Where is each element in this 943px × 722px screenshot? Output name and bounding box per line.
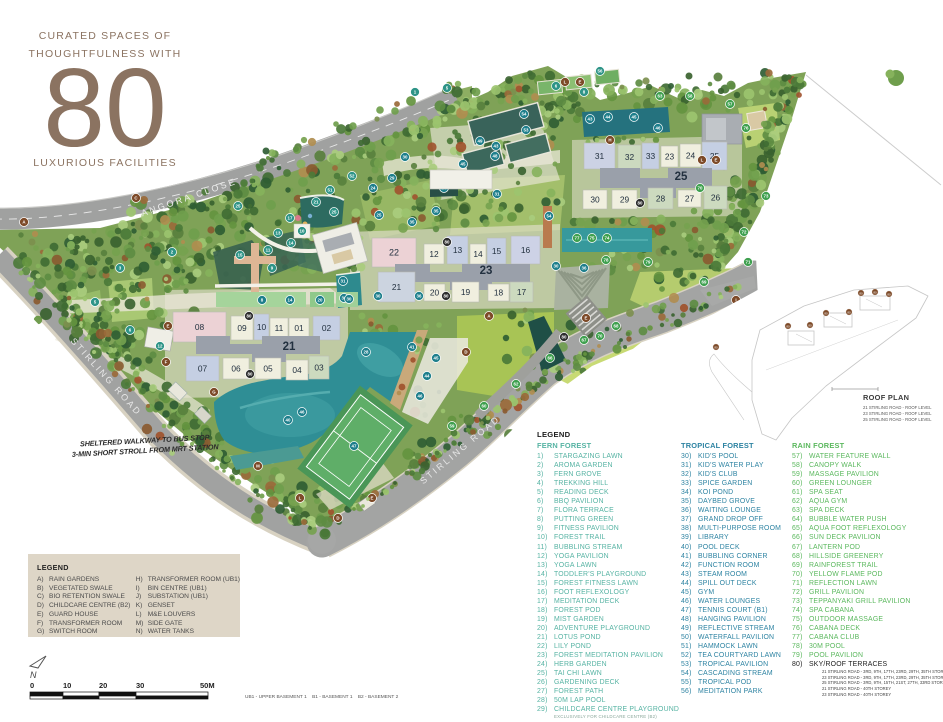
svg-text:80: 80	[887, 292, 891, 296]
svg-text:24: 24	[686, 151, 696, 161]
svg-text:30: 30	[376, 294, 381, 299]
svg-text:M: M	[256, 464, 260, 469]
svg-text:07: 07	[198, 364, 208, 374]
svg-text:05: 05	[263, 364, 273, 374]
svg-text:F: F	[165, 360, 168, 365]
svg-text:70: 70	[598, 334, 603, 339]
svg-text:30: 30	[347, 297, 352, 302]
svg-text:54: 54	[522, 112, 527, 117]
svg-text:80: 80	[786, 324, 790, 328]
svg-text:30: 30	[136, 681, 144, 690]
svg-text:70: 70	[698, 186, 703, 191]
svg-text:49: 49	[478, 139, 483, 144]
svg-text:30: 30	[554, 264, 559, 269]
svg-text:80: 80	[847, 310, 851, 314]
svg-text:D: D	[464, 350, 467, 355]
svg-text:47: 47	[352, 444, 357, 449]
svg-text:08: 08	[195, 322, 205, 332]
svg-text:46: 46	[418, 394, 423, 399]
svg-text:41: 41	[410, 345, 415, 350]
svg-text:51: 51	[328, 188, 333, 193]
svg-text:46: 46	[656, 126, 661, 131]
svg-text:L: L	[564, 80, 567, 85]
svg-text:35: 35	[434, 209, 439, 214]
svg-text:54: 54	[547, 214, 552, 219]
svg-text:13: 13	[276, 231, 281, 236]
svg-text:56: 56	[598, 69, 603, 74]
svg-text:14: 14	[289, 241, 294, 246]
svg-text:H: H	[608, 138, 611, 143]
svg-text:80: 80	[248, 372, 253, 377]
svg-text:63: 63	[658, 94, 663, 99]
svg-text:02: 02	[322, 323, 332, 333]
svg-text:03: 03	[314, 363, 324, 373]
svg-text:13: 13	[453, 245, 463, 255]
svg-text:35: 35	[410, 220, 415, 225]
svg-text:59: 59	[450, 424, 455, 429]
svg-text:21: 21	[314, 200, 319, 205]
svg-text:15: 15	[238, 253, 243, 258]
svg-text:23: 23	[665, 152, 675, 162]
svg-text:36: 36	[417, 294, 422, 299]
svg-text:80: 80	[444, 294, 449, 299]
svg-text:23: 23	[480, 265, 493, 277]
svg-text:78: 78	[604, 258, 609, 263]
svg-text:14: 14	[288, 298, 293, 303]
svg-text:33: 33	[646, 151, 656, 161]
svg-text:L: L	[299, 496, 302, 501]
svg-text:24: 24	[371, 186, 376, 191]
svg-text:44: 44	[425, 374, 430, 379]
svg-text:72: 72	[742, 230, 747, 235]
svg-text:80: 80	[562, 335, 567, 340]
svg-text:74: 74	[605, 236, 610, 241]
svg-text:20: 20	[99, 681, 107, 690]
svg-text:77: 77	[575, 236, 580, 241]
svg-text:30: 30	[403, 155, 408, 160]
svg-text:31: 31	[595, 151, 605, 161]
svg-text:52: 52	[350, 174, 355, 179]
svg-text:40: 40	[286, 418, 291, 423]
svg-text:22: 22	[389, 248, 399, 258]
svg-text:66: 66	[548, 356, 553, 361]
svg-text:32: 32	[625, 152, 635, 162]
svg-text:28: 28	[364, 350, 369, 355]
svg-text:71: 71	[746, 260, 751, 265]
svg-text:21: 21	[283, 341, 296, 353]
svg-text:79: 79	[646, 260, 651, 265]
svg-text:L: L	[701, 158, 704, 163]
svg-text:80: 80	[638, 201, 643, 206]
svg-text:11: 11	[275, 323, 284, 333]
svg-text:31: 31	[495, 192, 500, 197]
svg-text:15: 15	[492, 246, 502, 256]
svg-text:ROOF PLAN: ROOF PLAN	[863, 393, 909, 402]
svg-text:26: 26	[711, 193, 721, 203]
svg-text:10: 10	[300, 229, 305, 234]
svg-text:45: 45	[434, 356, 439, 361]
svg-text:20: 20	[318, 298, 323, 303]
svg-text:58: 58	[688, 94, 693, 99]
svg-text:N: N	[30, 670, 37, 680]
svg-text:80: 80	[808, 323, 812, 327]
svg-text:50M: 50M	[200, 681, 215, 690]
svg-text:17: 17	[517, 287, 527, 297]
svg-text:18: 18	[494, 288, 504, 298]
svg-text:80: 80	[247, 314, 252, 319]
svg-text:46: 46	[300, 410, 305, 415]
svg-text:UB1 - UPPER BASEMENT 1 B1 -: UB1 - UPPER BASEMENT 1 B1 - BASEMENT 1 B…	[245, 694, 399, 700]
svg-text:57: 57	[728, 102, 733, 107]
svg-text:E: E	[585, 316, 588, 321]
svg-text:23 STIRLING ROAD - ROOF LEVEL: 23 STIRLING ROAD - ROOF LEVEL	[863, 411, 932, 416]
svg-text:20: 20	[430, 288, 440, 298]
svg-text:25: 25	[332, 210, 337, 215]
svg-text:75: 75	[590, 236, 595, 241]
svg-text:30: 30	[590, 195, 600, 205]
svg-text:62: 62	[514, 382, 519, 387]
svg-text:E: E	[715, 158, 718, 163]
svg-text:14: 14	[473, 249, 483, 259]
svg-text:80: 80	[824, 311, 828, 315]
svg-text:36: 36	[582, 266, 587, 271]
svg-text:80: 80	[445, 240, 450, 245]
svg-text:25: 25	[236, 204, 241, 209]
svg-text:27: 27	[685, 194, 695, 204]
svg-text:76: 76	[744, 126, 749, 131]
svg-text:10: 10	[63, 681, 71, 690]
svg-text:06: 06	[231, 364, 241, 374]
svg-text:69: 69	[702, 280, 707, 285]
svg-text:45: 45	[632, 115, 637, 120]
svg-text:25: 25	[377, 213, 382, 218]
svg-text:67: 67	[582, 338, 587, 343]
svg-text:48: 48	[493, 154, 498, 159]
svg-text:01: 01	[294, 323, 304, 333]
svg-text:0: 0	[30, 681, 34, 690]
svg-text:80: 80	[873, 290, 877, 294]
svg-text:80: 80	[714, 345, 718, 349]
svg-text:29: 29	[390, 176, 395, 181]
svg-text:12: 12	[429, 249, 439, 259]
svg-text:21 STIRLING ROAD - ROOF LEVEL: 21 STIRLING ROAD - ROOF LEVEL	[863, 405, 932, 410]
svg-text:45: 45	[461, 162, 466, 167]
svg-text:44: 44	[606, 115, 611, 120]
svg-text:E: E	[167, 324, 170, 329]
svg-text:G: G	[212, 390, 216, 395]
svg-text:29: 29	[620, 195, 630, 205]
svg-text:68: 68	[614, 324, 619, 329]
svg-text:21: 21	[392, 282, 402, 292]
svg-text:10: 10	[257, 322, 267, 332]
svg-text:28: 28	[656, 194, 666, 204]
svg-text:D: D	[336, 516, 339, 521]
svg-text:25: 25	[675, 171, 688, 183]
svg-text:12: 12	[158, 344, 163, 349]
svg-text:43: 43	[494, 144, 499, 149]
svg-text:11: 11	[266, 248, 271, 253]
svg-text:E: E	[579, 80, 582, 85]
svg-text:53: 53	[524, 128, 529, 133]
svg-text:09: 09	[237, 323, 247, 333]
svg-text:60: 60	[482, 404, 487, 409]
svg-text:73: 73	[764, 194, 769, 199]
svg-text:25 STIRLING ROAD - ROOF LEVEL: 25 STIRLING ROAD - ROOF LEVEL	[863, 417, 932, 422]
svg-text:E: E	[371, 496, 374, 501]
svg-text:31: 31	[341, 279, 346, 284]
svg-text:16: 16	[521, 245, 531, 255]
svg-text:43: 43	[588, 117, 593, 122]
svg-text:80: 80	[859, 291, 863, 295]
svg-text:17: 17	[288, 216, 293, 221]
svg-text:04: 04	[292, 365, 302, 375]
svg-text:19: 19	[461, 287, 471, 297]
